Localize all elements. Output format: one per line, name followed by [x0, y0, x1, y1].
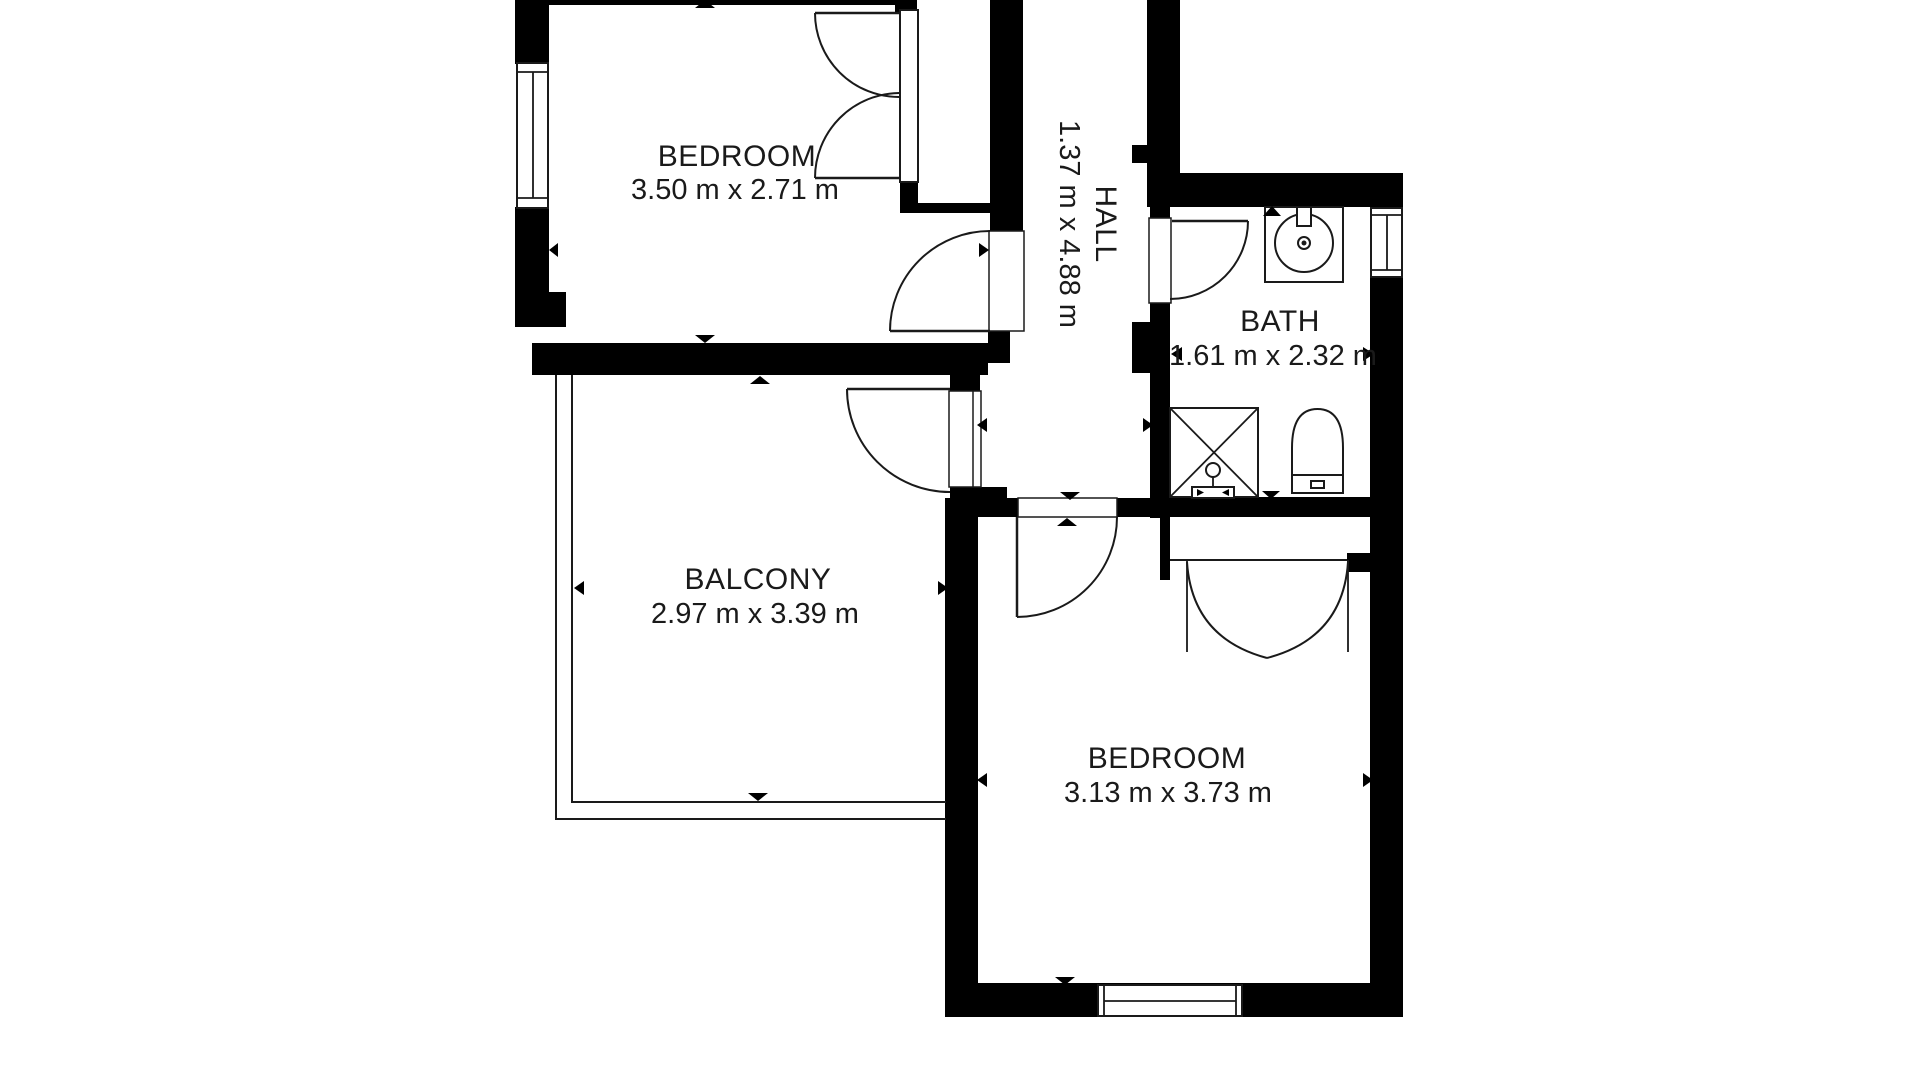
wall: [990, 0, 1023, 232]
wall: [900, 182, 918, 213]
window-bottom-bedroom: [1098, 985, 1242, 1016]
door-opening: [949, 391, 981, 487]
wall: [945, 498, 978, 1017]
wall: [1132, 145, 1147, 163]
wall: [988, 330, 1010, 363]
window-top-bedroom: [517, 63, 548, 208]
floor-plan: BEDROOM 3.50 m x 2.71 m HALL 1.37 m x 4.…: [0, 0, 1920, 1080]
door-opening: [1149, 218, 1171, 303]
wall: [532, 343, 988, 375]
room-name: BEDROOM: [658, 140, 817, 173]
room-dimensions: 1.61 m x 2.32 m: [1169, 340, 1377, 372]
room-name: BALCONY: [685, 563, 832, 596]
wall: [547, 0, 895, 5]
window-bath: [1371, 208, 1402, 277]
wall: [950, 360, 980, 391]
wall: [1160, 517, 1170, 580]
wall: [1150, 497, 1403, 517]
wardrobe-frame: [900, 10, 918, 182]
room-dimensions: 3.13 m x 3.73 m: [1064, 777, 1272, 809]
wall: [1147, 173, 1403, 207]
wall: [1150, 302, 1170, 518]
room-dimensions: 3.50 m x 2.71 m: [631, 174, 839, 206]
wall: [515, 0, 549, 64]
wall: [532, 292, 566, 327]
door-opening: [1018, 498, 1117, 517]
wall: [1150, 207, 1170, 218]
wall: [1132, 322, 1150, 373]
wall: [1347, 553, 1373, 572]
room-dimensions: 1.37 m x 4.88 m: [1053, 120, 1085, 328]
wall: [1370, 207, 1403, 1017]
room-name: BATH: [1240, 305, 1320, 338]
door-opening: [989, 231, 1024, 331]
room-name: BEDROOM: [1088, 742, 1247, 775]
sink-icon: [1265, 207, 1343, 282]
toilet-icon: [1292, 409, 1343, 493]
room-dimensions: 2.97 m x 3.39 m: [651, 598, 859, 630]
shower-icon: [1170, 408, 1258, 498]
room-name: HALL: [1089, 185, 1122, 262]
